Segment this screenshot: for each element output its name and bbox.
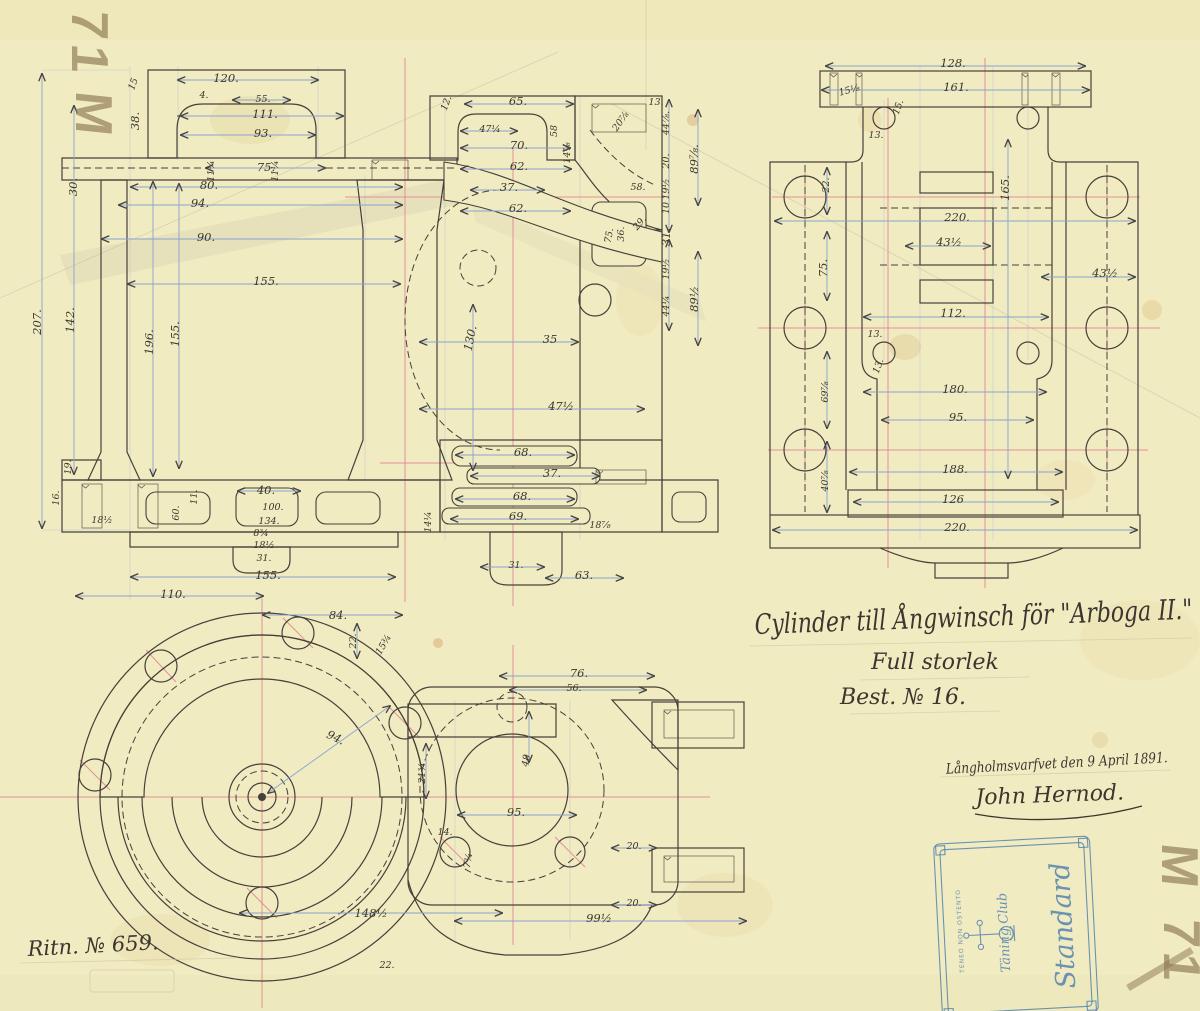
dimension-label: 90. [197,230,215,244]
dimension-label: 62. [510,159,528,173]
pencil-letter: M [64,89,122,138]
dimension-label: 44¼ [661,295,672,317]
dimension-label: 19. [63,459,74,474]
dimension-label: 62. [509,201,527,215]
dimension-label: 112. [940,306,966,320]
pencil-mark-top-left: 71 M [60,7,122,138]
dimension-label: 13. [648,97,663,108]
dimension-label: 89½ [687,286,701,312]
technical-drawing: 120.55.111.93.75.80.94.90.155.4.1538.30.… [0,0,1200,1011]
dimension-label: 11¼ [206,160,217,181]
pencil-letter: M [1150,841,1200,890]
dimension-label: 95. [949,410,967,424]
dimension-label: 148½ [354,906,387,920]
dimension-label: 188. [942,462,968,476]
dimension-label: 93. [254,126,272,140]
threaded-stud [138,484,158,528]
dimension-label: 31. [508,560,523,571]
dimension-label: 31. [659,228,673,246]
dimension-label: 19½ [661,258,672,279]
threaded-stud [596,470,646,484]
dimension-label: 89⅞. [687,144,701,173]
dimension-label: 20. [625,841,641,852]
order-number: Best. № 16. [839,685,966,710]
dimension-label: 4. [198,90,208,101]
dimension-label: 21¾ [417,762,428,784]
dimension-label: 56. [566,683,581,694]
pencil-number: 71 [60,7,118,83]
signature-name: John Hernod. [971,780,1124,810]
dimension-label: 14⅞ [562,142,573,164]
dimension-label: 20. [661,153,672,169]
dimension-label: 63. [575,568,593,582]
dimension-label: 120. [213,71,239,85]
dimension-label: 220. [943,210,970,224]
dimension-label: 40. [256,483,275,497]
dimension-label: 220. [943,520,970,534]
dimension-label: 65. [509,94,527,108]
dimension-label: 14. [437,827,452,838]
dimension-label: 69. [509,509,527,523]
dimension-label: 43½ [1091,266,1118,280]
dimension-label: 38. [128,112,142,130]
dimension-label: 35 [543,332,558,346]
dimension-label: 47½ [547,399,574,413]
dimension-label: 22. [378,960,394,971]
dimension-label: 70. [510,138,528,152]
dimension-label: 134. [258,516,279,527]
threaded-stud [664,856,734,882]
dimension-label: 30. [66,178,80,196]
dimension-label: 37. [500,180,518,194]
dimension-label: 58 [549,125,560,137]
dimension-label: 155. [253,274,279,288]
dimension-label: 94. [191,196,209,210]
dimension-label: 13. [867,329,882,340]
dimension-label: 165. [998,175,1012,201]
dimension-label: 126 [942,492,964,506]
dimension-label: 155. [168,321,182,347]
dimension-label: 196. [142,329,156,355]
dimension-label: 13. [868,130,883,141]
dimension-label: 37. [543,466,561,480]
dimension-label: 11¼ [270,160,281,181]
dimension-label: 8¾ [253,528,268,539]
dimension-label: 18½ [253,540,274,551]
dimension-label: 69⅞ [820,381,831,403]
dimension-label: 111. [252,107,278,121]
dimension-label: 99½ [586,911,612,925]
dimension-label: 48 [520,754,533,769]
dimension-label: 68. [513,489,531,503]
drawing-scale: Full storlek [870,650,999,675]
dimension-label: 142. [63,307,77,333]
dimension-label: 19½ [661,178,672,199]
dimension-label: 14¼ [423,511,434,532]
dimension-label: 180. [942,382,968,396]
dimension-label: 110. [160,587,186,601]
dimension-label: 155. [255,568,281,582]
dimension-label: 16. [51,490,62,505]
dimension-label: 40⅞ [820,470,831,493]
stamp-club-name: Standard [1045,862,1083,990]
dimension-label: 22. [821,177,832,193]
dimension-label: 95. [507,805,525,819]
dimension-label: 22. [348,633,359,649]
blueprint-sheet: 120.55.111.93.75.80.94.90.155.4.1538.30.… [0,0,1200,1011]
dimension-label: 100. [262,502,283,513]
dimension-label: 84. [329,608,347,622]
dimension-label: 55. [255,94,270,105]
dimension-label: 43½ [935,235,962,249]
dimension-label: 207. [30,309,44,336]
dimension-label: 47¼ [478,124,500,135]
dimension-label: 18⅞ [589,520,611,531]
dimension-label: 60. [171,505,182,520]
dimension-label: 10 [661,202,672,214]
dimension-label: 36. [616,226,627,241]
dimension-label: 75. [816,259,830,277]
dimension-label: 58. [630,182,645,193]
dimension-label: 128. [940,56,966,70]
threaded-stud [664,710,734,738]
dimension-label: 68. [514,445,532,459]
dimension-label: 76. [570,666,588,680]
dimension-label: 20. [625,898,641,909]
dimension-label: 18½ [91,515,112,526]
dimension-label: 44⅞. [661,111,672,136]
dimension-label: 11. [189,489,200,504]
threaded-hole [372,160,408,180]
dimension-label: 31. [256,553,271,564]
dimension-label: 161. [943,80,969,94]
